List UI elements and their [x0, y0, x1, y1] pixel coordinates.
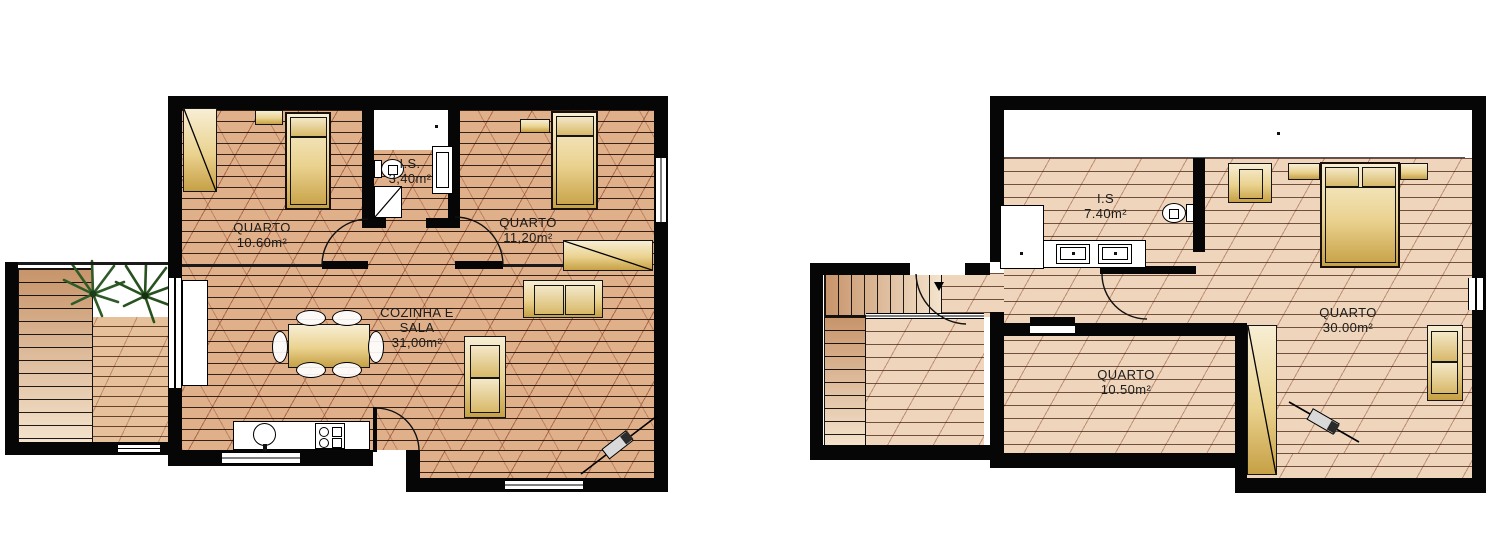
dresser-detail	[1239, 169, 1263, 199]
wardrobe	[1247, 325, 1277, 475]
drain-dot	[1020, 252, 1023, 255]
sofa-cushion	[1431, 362, 1458, 394]
wall	[990, 312, 1004, 453]
section-cut-marker	[1284, 396, 1364, 448]
wall	[1235, 478, 1486, 493]
room-name: QUARTO	[1286, 305, 1410, 320]
room-area: 7.40m²	[1058, 206, 1153, 221]
sink-icon	[1098, 244, 1132, 264]
faucet-icon	[1114, 252, 1117, 255]
faucet-icon	[1072, 252, 1075, 255]
stair-landing-floor	[866, 318, 984, 448]
toilet-tank	[1186, 204, 1194, 222]
toilet-detail	[1169, 209, 1179, 219]
room-label-bedroom-master: QUARTO 30.00m²	[1286, 305, 1410, 335]
wall	[990, 96, 1486, 110]
pillow	[1325, 167, 1359, 187]
nightstand	[1288, 163, 1320, 180]
door-leaf	[1030, 317, 1075, 323]
void-area	[1004, 110, 1465, 158]
sofa-vertical	[1427, 325, 1463, 401]
door-swing-arc	[1100, 272, 1150, 322]
room-label-bedroom-small: QUARTO 10.50m²	[1064, 367, 1188, 397]
wall	[810, 263, 823, 458]
sink-icon	[1056, 244, 1090, 264]
room-area: 30.00m²	[1286, 320, 1410, 335]
upper-floor-plan: I.S 7.40m² QUARTO 30.00m² QUARTO 10.50m²	[0, 0, 1507, 557]
room-label-bathroom: I.S 7.40m²	[1058, 191, 1153, 221]
room-name: I.S	[1058, 191, 1153, 206]
window	[1468, 278, 1484, 310]
wall	[810, 445, 990, 460]
room-area: 10.50m²	[1064, 382, 1188, 397]
wall	[990, 453, 1247, 468]
bed-double	[1320, 162, 1400, 268]
stairs-lower-run	[824, 316, 866, 448]
shower-closet	[1000, 205, 1044, 269]
bed-cover	[1325, 187, 1396, 263]
wall	[1235, 323, 1247, 478]
bedroom-floor-extension	[1247, 453, 1472, 480]
nightstand	[1400, 163, 1428, 180]
sofa-cushion	[1431, 331, 1458, 362]
marker-dot	[1277, 132, 1280, 135]
door-swing-arc	[908, 272, 968, 328]
floor-plan-canvas: QUARTO 10.60m² I.S. 3,40m² QUARTO 11,20m…	[0, 0, 1507, 557]
door-opening	[1030, 326, 1075, 333]
pillow	[1362, 167, 1396, 187]
wall	[1193, 158, 1205, 252]
dresser	[1228, 163, 1272, 203]
room-name: QUARTO	[1064, 367, 1188, 382]
